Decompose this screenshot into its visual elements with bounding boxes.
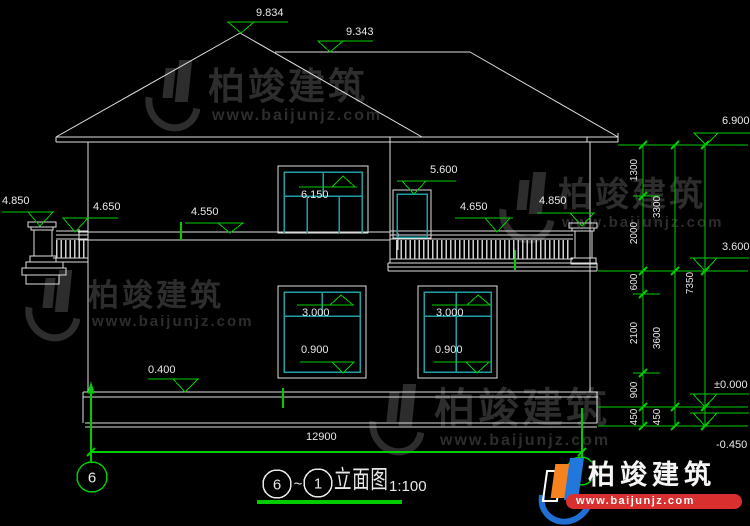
dim-450-middle: 450: [653, 409, 663, 426]
elev-railing-left: 4.650: [93, 202, 121, 213]
dim-450-inner: 450: [630, 409, 640, 426]
dim-600: 600: [630, 274, 640, 291]
dimension-ticks: [87, 141, 709, 456]
dim-3600: 3600: [653, 327, 663, 349]
elev-door2f-head: 6.150: [301, 190, 329, 201]
site-logo: 柏竣建筑 www.baijunjz.com: [536, 450, 750, 526]
window-1f-right-glazing: [424, 292, 491, 372]
elev-window2f-head: 5.600: [430, 165, 458, 176]
dim-3300: 3300: [653, 196, 663, 218]
elev-window-head-left: 3.000: [302, 308, 330, 319]
roof-lines: [56, 33, 618, 137]
site-logo-icon: [536, 454, 590, 520]
dim-2000: 2000: [630, 222, 640, 244]
elev-parapet-left: 4.850: [2, 196, 30, 207]
elev-parapet-right: 4.850: [539, 196, 567, 207]
dim-overall-width: 12900: [306, 432, 337, 443]
elev-belt: 4.550: [191, 207, 219, 218]
door-2f-glazing: [284, 172, 362, 233]
dim-2100: 2100: [630, 322, 640, 344]
elev-window-head-right: 3.000: [436, 308, 464, 319]
elev-railing-right: 4.650: [460, 202, 488, 213]
elev-zero: ±0.000: [714, 380, 748, 391]
right-parapet-pillar: [569, 223, 597, 264]
elev-roof-ridge: 9.343: [346, 27, 374, 38]
elev-window-sill-left: 0.900: [301, 345, 329, 356]
axis-arrow: [88, 383, 94, 393]
site-logo-brand: 柏竣建筑: [588, 462, 716, 489]
title-separator: ~: [294, 477, 303, 492]
title-axis-right: 1: [314, 477, 322, 492]
title-scale: 1:100: [389, 479, 427, 494]
dim-1300: 1300: [630, 159, 640, 181]
annotation-lines: [2, 22, 750, 504]
elevation-marker-triangles: [28, 22, 718, 426]
cad-linework: [0, 0, 750, 526]
balcony-balusters-left: [56, 240, 87, 258]
site-logo-url: www.baijunjz.com: [576, 496, 695, 507]
title-name: 立面图: [334, 468, 389, 493]
window-1f-right-frame: [418, 286, 497, 378]
elev-eave: 6.900: [722, 116, 750, 127]
building-outline: [22, 33, 618, 427]
elev-window-sill-right: 0.900: [435, 345, 463, 356]
elev-plinth: 0.400: [148, 365, 176, 376]
dim-900: 900: [630, 382, 640, 399]
elev-roof-peak: 9.834: [256, 8, 284, 19]
dim-7350: 7350: [686, 272, 696, 294]
title-axis-left: 6: [273, 478, 281, 493]
elev-floor2: 3.600: [722, 242, 750, 253]
balcony-balusters-right: [396, 240, 570, 259]
title-underline: [257, 500, 402, 504]
elevation-drawing-canvas: 柏竣建筑 www.baijunjz.com 柏竣建筑 www.baijunjz.…: [0, 0, 750, 526]
axis-bubble-left-label: 6: [88, 471, 96, 486]
